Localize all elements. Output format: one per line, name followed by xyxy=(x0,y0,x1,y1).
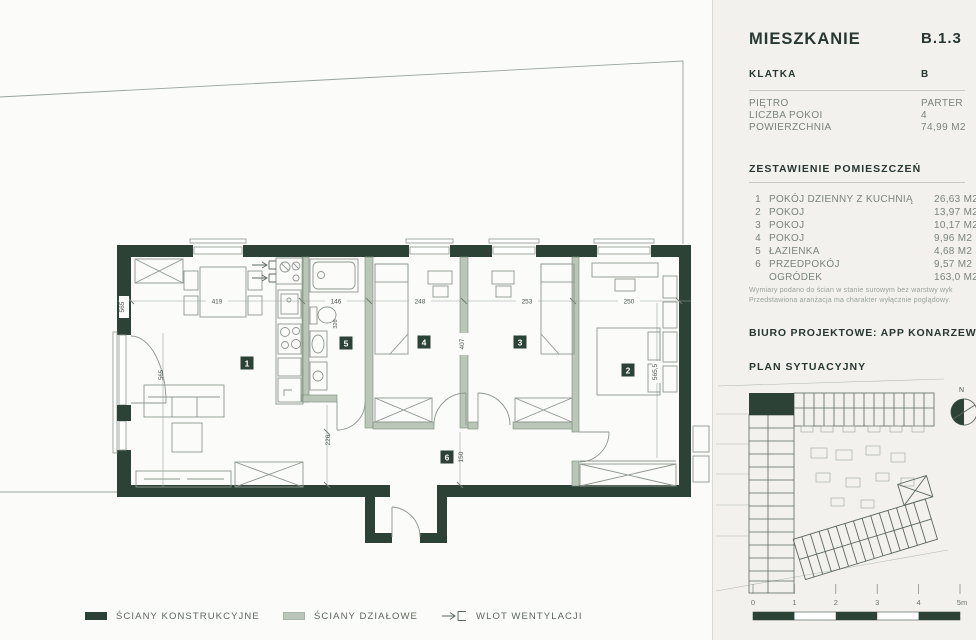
room-num: 2 xyxy=(749,207,761,218)
bathroom-door-arc xyxy=(337,402,365,430)
room-list-item: OGRÓDEK 163,0 M2 xyxy=(749,272,976,285)
room-num: 6 xyxy=(749,259,761,270)
room-list-item: 2POKOJ 13,97 M2 xyxy=(749,207,976,220)
divider xyxy=(749,90,965,91)
design-office: BIURO PROJEKTOWE: APP KONARZEWSKI xyxy=(749,327,969,339)
room-list-item: 5ŁAZIENKA 4,68 M2 xyxy=(749,246,976,259)
note-line-1: Wymiary podano do ścian w stanie surowym… xyxy=(749,286,976,296)
legend-label: WLOT WENTYLACJI xyxy=(476,611,583,622)
dim-hall2-height: 150 xyxy=(458,451,465,462)
klatka-value: B xyxy=(921,69,929,80)
room-name: POKOJ xyxy=(769,220,804,231)
room-area: 9,57 M2 xyxy=(934,259,972,270)
room-name: POKOJ xyxy=(769,207,804,218)
legend-item-partition-walls: ŚCIANY DZIAŁOWE xyxy=(283,609,418,623)
dim-bath-height: 326 xyxy=(333,319,339,328)
wardrobe-room4 xyxy=(375,398,432,422)
highlighted-unit-marker xyxy=(749,393,794,415)
room-list: 1POKÓJ DZIENNY Z KUCHNIĄ 26,63 M2 2POKOJ… xyxy=(749,194,976,285)
sofa xyxy=(144,385,224,417)
wardrobe-room2 xyxy=(580,461,676,486)
structural-wall-swatch xyxy=(85,612,107,620)
rooms-count-value: 4 xyxy=(921,110,927,121)
dim-living-height: 565 xyxy=(119,301,126,312)
room-area: 9,96 M2 xyxy=(934,233,972,244)
apartment-number: B.1.3 xyxy=(921,30,962,47)
vent-inlet-icons xyxy=(252,261,276,282)
wardrobe-hall-left xyxy=(235,462,303,487)
info-panel: MIESZKANIE B.1.3 KLATKA B PIĘTRO PARTER … xyxy=(712,0,976,640)
compass-n-label: N xyxy=(959,387,964,394)
room-name: OGRÓDEK xyxy=(769,272,822,283)
floorplan-sheet: { "panel": { "title": { "label": "MIESZK… xyxy=(0,0,976,640)
legend: ŚCIANY KONSTRUKCYJNE ŚCIANY DZIAŁOWE WLO… xyxy=(0,609,712,629)
room4-furniture xyxy=(375,264,452,354)
dim-rooms-height: 407 xyxy=(459,338,466,349)
kitchen-units xyxy=(276,258,303,404)
scale-label-1: 1 xyxy=(792,598,796,607)
dim-room3-width: 253 xyxy=(522,299,533,306)
apartment-title-label: MIESZKANIE xyxy=(749,30,861,48)
room-num: 4 xyxy=(749,233,761,244)
dim-living-height2: 565 xyxy=(159,369,165,380)
entrance-door-arc xyxy=(392,507,420,537)
dimension-labels: 419 146 248 253 250 565 565 326 407 565,… xyxy=(119,296,662,462)
legend-label: ŚCIANY DZIAŁOWE xyxy=(314,611,418,622)
room3-furniture xyxy=(492,264,574,354)
room-list-item: 3POKOJ 10,17 M2 xyxy=(749,220,976,233)
room-area: 163,0 M2 xyxy=(934,272,976,283)
scale-label-4: 4 xyxy=(917,598,921,607)
balcony-door-arc xyxy=(131,336,166,403)
area-row: POWIERZCHNIA 74,99 M2 xyxy=(749,122,969,134)
site-plan: N 0 1 2 3 4 5m xyxy=(716,378,976,628)
legend-item-vent-inlet: WLOT WENTYLACJI xyxy=(441,609,583,623)
rooms-count-label: LICZBA POKOI xyxy=(749,110,823,121)
floor-plan-drawing: 419 146 248 253 250 565 565 326 407 565,… xyxy=(0,0,715,640)
note-line-2: Przedstawiona aranżacja ma charakter wył… xyxy=(749,296,976,306)
dim-room2-width: 250 xyxy=(624,299,635,306)
dim-bath-width: 146 xyxy=(331,299,342,306)
klatka-row: KLATKA B xyxy=(749,69,969,80)
coffee-table xyxy=(172,423,202,452)
room-num: 1 xyxy=(749,194,761,205)
area-value: 74,99 M2 xyxy=(921,122,966,133)
room-area: 13,97 M2 xyxy=(934,207,976,218)
wardrobe-room3 xyxy=(515,398,572,422)
room-num: 3 xyxy=(749,220,761,231)
divider xyxy=(749,182,965,183)
dim-living-width: 419 xyxy=(212,299,223,306)
dining-table xyxy=(184,267,262,317)
disclaimer-note: Wymiary podano do ścian w stanie surowym… xyxy=(749,286,976,305)
scale-label-2: 2 xyxy=(834,598,838,607)
partition-wall-swatch xyxy=(283,612,305,620)
room2-door-arc xyxy=(579,432,609,462)
badge-room5: 5 xyxy=(344,339,349,349)
room-list-item: 6PRZEDPOKÓJ 9,57 M2 xyxy=(749,259,976,272)
structural-walls xyxy=(117,245,691,543)
plot-boundary-lines xyxy=(0,61,683,492)
floor-value: PARTER xyxy=(921,98,963,109)
scale-label-0: 0 xyxy=(751,598,755,607)
bathtub xyxy=(310,259,358,292)
legend-item-structural-walls: ŚCIANY KONSTRUKCYJNE xyxy=(85,609,260,623)
siteplan-header: PLAN SYTUACYJNY xyxy=(749,361,969,373)
badge-room1: 1 xyxy=(245,359,250,369)
room-area: 4,68 M2 xyxy=(934,246,972,257)
area-label: POWIERZCHNIA xyxy=(749,122,832,133)
badge-room3: 3 xyxy=(518,338,523,348)
scale-bar: 0 1 2 3 4 5m xyxy=(751,584,967,620)
dim-room2-height: 565,5 xyxy=(652,363,659,380)
badge-room6: 6 xyxy=(445,453,450,463)
washbasin xyxy=(310,331,327,357)
room-list-header: ZESTAWIENIE POMIESZCZEŃ xyxy=(749,163,969,175)
apartment-title-row: MIESZKANIE B.1.3 xyxy=(749,30,969,49)
badge-room4: 4 xyxy=(422,338,427,348)
room-list-item: 4POKOJ 9,96 M2 xyxy=(749,233,976,246)
wardrobe-living xyxy=(135,259,183,283)
washing-machine xyxy=(310,362,327,390)
klatka-label: KLATKA xyxy=(749,69,797,80)
scale-label-5: 5m xyxy=(957,598,967,607)
room-name: POKOJ xyxy=(769,233,804,244)
legend-label: ŚCIANY KONSTRUKCYJNE xyxy=(116,611,260,622)
dim-hall-height: 226 xyxy=(325,434,332,445)
floor-row: PIĘTRO PARTER xyxy=(749,98,969,110)
room-name: ŁAZIENKA xyxy=(769,246,820,257)
room-area: 10,17 M2 xyxy=(934,220,976,231)
room-num: 5 xyxy=(749,246,761,257)
floor-label: PIĘTRO xyxy=(749,98,789,109)
room-list-item: 1POKÓJ DZIENNY Z KUCHNIĄ 26,63 M2 xyxy=(749,194,976,207)
room-name: PRZEDPOKÓJ xyxy=(769,259,840,270)
scale-label-3: 3 xyxy=(875,598,879,607)
tv-sideboard xyxy=(136,471,231,487)
room-area: 26,63 M2 xyxy=(934,194,976,205)
site-balconies xyxy=(801,426,924,508)
vent-inlet-icon xyxy=(441,610,467,622)
site-parking-building xyxy=(787,476,945,580)
dimension-lines xyxy=(117,298,691,488)
dim-room4-width: 248 xyxy=(415,299,426,306)
room3-door-arc xyxy=(478,393,510,425)
room-name: POKÓJ DZIENNY Z KUCHNIĄ xyxy=(769,194,913,205)
neighbour-walls xyxy=(693,426,709,482)
badge-room2: 2 xyxy=(626,366,631,376)
north-compass-icon: N xyxy=(951,387,976,425)
rooms-count-row: LICZBA POKOI 4 xyxy=(749,110,969,122)
site-buildings xyxy=(749,393,934,593)
